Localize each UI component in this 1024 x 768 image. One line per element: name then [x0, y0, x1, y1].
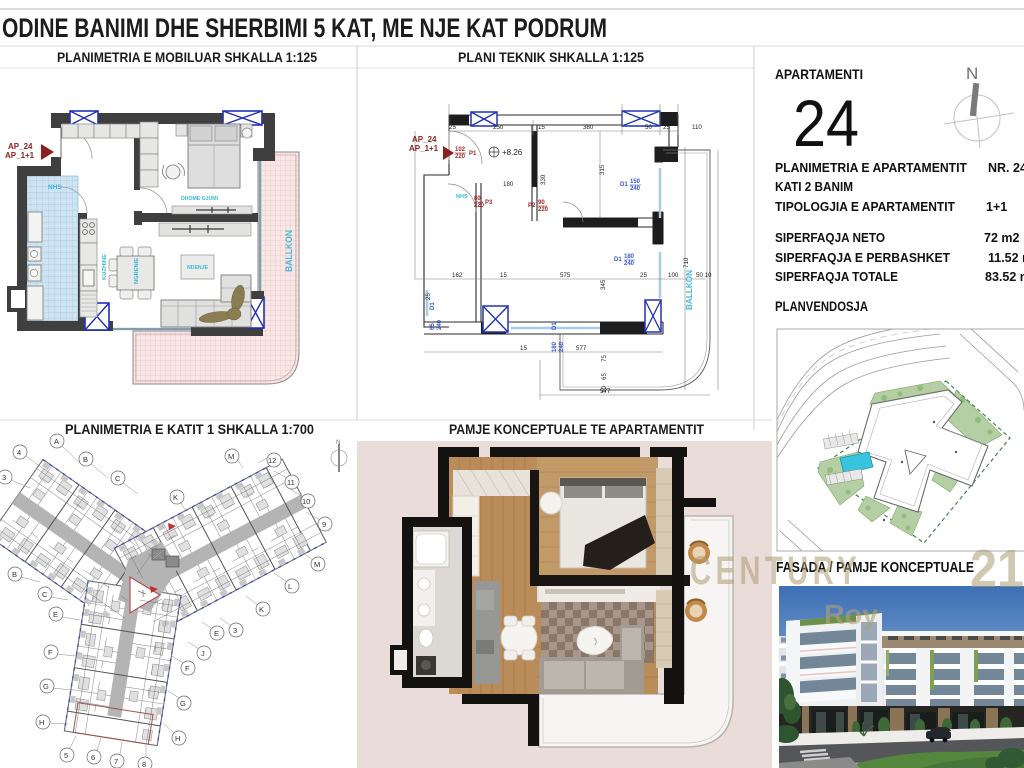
svg-text:BALLKON: BALLKON — [685, 270, 694, 310]
svg-text:BALLKON: BALLKON — [284, 230, 294, 272]
svg-text:PLANVENDOSJA: PLANVENDOSJA — [775, 298, 868, 314]
svg-text:NR. 24: NR. 24 — [988, 161, 1024, 175]
svg-text:50: 50 — [645, 124, 652, 131]
svg-text:220: 220 — [538, 207, 549, 213]
svg-text:180: 180 — [624, 254, 635, 260]
svg-text:5: 5 — [64, 751, 68, 760]
svg-text:15: 15 — [538, 124, 545, 131]
svg-text:N: N — [336, 440, 340, 446]
svg-text:K: K — [259, 605, 264, 614]
svg-text:CENTURY: CENTURY — [690, 549, 861, 593]
svg-text:21: 21 — [970, 539, 1024, 599]
svg-text:P3: P3 — [485, 200, 493, 206]
svg-text:N: N — [966, 64, 978, 83]
svg-text:KATI 2 BANIM: KATI 2 BANIM — [775, 180, 853, 194]
svg-text:PLANIMETRIA E APARTAMENTIT: PLANIMETRIA E APARTAMENTIT — [775, 161, 967, 175]
svg-text:72 m2: 72 m2 — [984, 231, 1019, 245]
svg-text:24: 24 — [793, 86, 859, 160]
svg-text:A: A — [54, 437, 59, 446]
svg-text:E: E — [214, 629, 219, 638]
svg-text:240: 240 — [630, 186, 641, 192]
svg-text:TIPOLOGJIA E APARTAMENTIT: TIPOLOGJIA E APARTAMENTIT — [775, 200, 955, 214]
svg-text:NHS: NHS — [456, 194, 468, 200]
svg-text:E: E — [53, 610, 58, 619]
svg-text:DHOME GJUMI: DHOME GJUMI — [181, 196, 218, 202]
svg-text:6: 6 — [91, 753, 95, 762]
svg-text:PLANIMETRIA E MOBILUAR SHKALL: PLANIMETRIA E MOBILUAR SHKALLA 1:125 — [57, 50, 317, 65]
svg-text:15: 15 — [500, 272, 507, 279]
svg-text:15: 15 — [520, 345, 527, 352]
svg-text:240: 240 — [437, 319, 443, 330]
svg-text:180: 180 — [552, 341, 558, 352]
svg-text:4: 4 — [17, 448, 21, 457]
svg-text:NHS: NHS — [48, 184, 62, 191]
svg-text:C: C — [115, 474, 121, 483]
svg-text:L: L — [288, 582, 292, 591]
svg-text:G: G — [180, 699, 186, 708]
svg-text:90: 90 — [538, 200, 545, 206]
svg-text:577: 577 — [576, 345, 587, 352]
svg-text:AP_1+1: AP_1+1 — [5, 151, 35, 160]
svg-text:102: 102 — [455, 147, 466, 153]
svg-text:315: 315 — [599, 164, 606, 175]
svg-text:NDENJE: NDENJE — [187, 265, 208, 271]
svg-text:11.52 m2: 11.52 m2 — [988, 251, 1024, 265]
svg-text:110: 110 — [692, 124, 702, 131]
svg-text:710: 710 — [683, 257, 690, 268]
svg-text:AP_1+1: AP_1+1 — [409, 144, 439, 153]
svg-text:NGRENIE: NGRENIE — [134, 258, 140, 284]
svg-text:PAMJE KONCEPTUALE TE APARTAMEN: PAMJE KONCEPTUALE TE APARTAMENTIT — [449, 422, 705, 437]
svg-text:M: M — [314, 560, 320, 569]
svg-text:P1: P1 — [469, 151, 477, 157]
svg-text:AP_24: AP_24 — [412, 135, 437, 144]
svg-text:SIPERFAQJA TOTALE: SIPERFAQJA TOTALE — [775, 270, 898, 284]
svg-text:11: 11 — [287, 478, 295, 487]
svg-text:SIPERFAQJA E PERBASHKET: SIPERFAQJA E PERBASHKET — [775, 251, 950, 265]
svg-text:G: G — [43, 682, 49, 691]
svg-text:8: 8 — [142, 760, 146, 768]
svg-text:3: 3 — [233, 626, 237, 635]
svg-text:J: J — [201, 649, 205, 658]
svg-text:KUZHINE: KUZHINE — [102, 254, 108, 280]
svg-text:12: 12 — [268, 456, 276, 465]
svg-text:240: 240 — [559, 341, 565, 352]
svg-text:80: 80 — [474, 196, 481, 202]
svg-text:AP_24: AP_24 — [8, 142, 33, 151]
svg-text:ODINE BANIMI DHE SHERBIMI 5 KA: ODINE BANIMI DHE SHERBIMI 5 KAT, ME NJE … — [2, 13, 607, 43]
svg-text:Roy: Roy — [824, 599, 878, 630]
svg-text:P2: P2 — [528, 203, 536, 209]
svg-text:SIPERFAQJA NETO: SIPERFAQJA NETO — [775, 231, 885, 245]
svg-text:220: 220 — [455, 154, 466, 160]
svg-text:K: K — [173, 493, 178, 502]
svg-text:D1: D1 — [620, 182, 628, 188]
svg-text:162: 162 — [452, 272, 463, 279]
svg-text:220: 220 — [474, 203, 485, 209]
svg-text:65: 65 — [430, 323, 436, 330]
svg-text:D1: D1 — [430, 302, 436, 310]
svg-text:3: 3 — [2, 473, 6, 482]
svg-text:M: M — [228, 452, 234, 461]
svg-text:B: B — [12, 570, 17, 579]
svg-text:10: 10 — [601, 386, 608, 393]
svg-text:150: 150 — [630, 179, 641, 185]
svg-text:D1: D1 — [614, 257, 622, 263]
svg-text:380: 380 — [583, 124, 594, 131]
svg-text:330: 330 — [540, 174, 547, 185]
svg-text:180: 180 — [503, 181, 514, 188]
svg-text:65: 65 — [601, 373, 608, 380]
svg-text:PLANI TEKNIK SHKALLA 1:125: PLANI TEKNIK SHKALLA 1:125 — [458, 50, 644, 65]
svg-text:F: F — [48, 648, 53, 657]
svg-text:B: B — [83, 455, 88, 464]
svg-text:1+1: 1+1 — [986, 200, 1007, 214]
svg-text:100: 100 — [668, 272, 679, 279]
svg-text:240: 240 — [624, 261, 635, 267]
svg-text:83.52 m2: 83.52 m2 — [985, 270, 1024, 284]
svg-text:PLANIMETRIA E KATIT 1 SHKAL: PLANIMETRIA E KATIT 1 SHKALLA 1:700 — [65, 422, 314, 437]
svg-text:+8.26: +8.26 — [502, 148, 523, 157]
svg-text:250: 250 — [493, 124, 504, 131]
svg-text:H: H — [39, 718, 44, 727]
svg-text:10: 10 — [302, 497, 310, 506]
svg-text:25: 25 — [640, 272, 647, 279]
svg-text:25: 25 — [425, 293, 432, 300]
svg-text:9: 9 — [322, 520, 326, 529]
svg-text:D1: D1 — [552, 322, 558, 330]
svg-text:575: 575 — [560, 272, 571, 279]
svg-text:75: 75 — [601, 355, 608, 362]
svg-text:25: 25 — [663, 124, 670, 131]
svg-text:7: 7 — [114, 757, 118, 766]
svg-text:F: F — [185, 664, 190, 673]
svg-text:345: 345 — [600, 279, 607, 290]
svg-text:H: H — [175, 734, 180, 743]
svg-text:50 10: 50 10 — [696, 272, 712, 279]
svg-text:C: C — [42, 590, 48, 599]
svg-text:25: 25 — [449, 124, 456, 131]
svg-text:APARTAMENTI: APARTAMENTI — [775, 66, 863, 82]
